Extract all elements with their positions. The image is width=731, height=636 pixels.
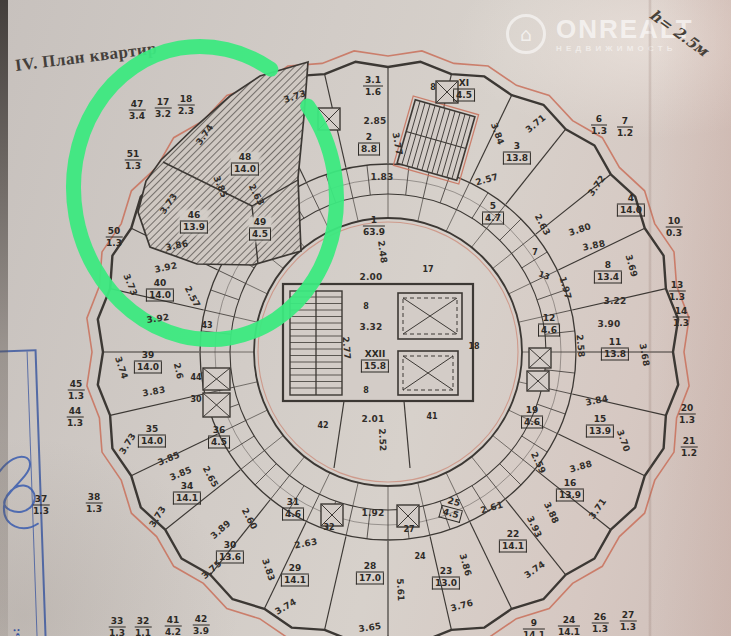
paper-fold-line [648,0,652,636]
onrealt-logo-icon: ⌂ [506,14,546,54]
stamp-label: тель: [8,627,24,636]
hatched-rooms [138,62,308,265]
central-core [283,284,473,468]
upper-stairwell [393,96,478,184]
house-icon: ⌂ [520,25,532,44]
floor-plan-drawing [0,0,731,636]
watermark-subtitle: НЕДВИЖИМОСТЬ [556,44,694,53]
page-edge-shadow [0,0,8,636]
scanned-floor-plan-photo: IV. План квартир 473.4173.2182.3511.3501… [0,0,731,636]
